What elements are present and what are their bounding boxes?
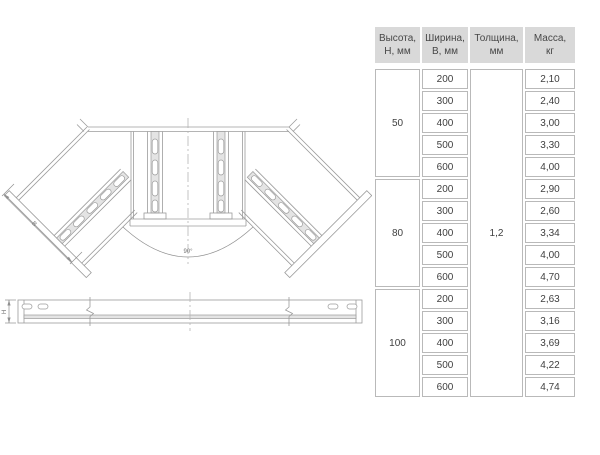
table-row: 50 200 1,2 2,10 <box>375 69 575 89</box>
break-line-right <box>286 297 293 326</box>
cable-tray-bend-drawing: В 90° Н <box>0 0 372 450</box>
mass-cell: 3,00 <box>525 113 575 133</box>
width-cell: 200 <box>422 69 468 89</box>
height-dim-label: Н <box>2 310 8 314</box>
perforated-rail-right <box>210 132 232 220</box>
mass-cell: 4,00 <box>525 157 575 177</box>
mass-cell: 2,60 <box>525 201 575 221</box>
width-cell: 500 <box>422 245 468 265</box>
width-cell: 400 <box>422 333 468 353</box>
mass-cell: 4,74 <box>525 377 575 397</box>
width-cell: 300 <box>422 311 468 331</box>
width-cell: 300 <box>422 91 468 111</box>
col-header-height: Высота,Н, мм <box>375 27 420 67</box>
mass-cell: 3,16 <box>525 311 575 331</box>
mass-cell: 2,10 <box>525 69 575 89</box>
side-view: Н <box>2 292 362 331</box>
top-view: В 90° <box>2 118 372 278</box>
width-cell: 400 <box>422 113 468 133</box>
width-dim-label: В <box>30 221 37 228</box>
width-cell: 500 <box>422 135 468 155</box>
mass-cell: 2,40 <box>525 91 575 111</box>
mass-cell: 4,70 <box>525 267 575 287</box>
col-header-width: Ширина,В, мм <box>422 27 468 67</box>
col-header-mass: Масса,кг <box>525 27 575 67</box>
mass-cell: 4,00 <box>525 245 575 265</box>
mass-cell: 3,34 <box>525 223 575 243</box>
width-dimension: В <box>2 184 82 264</box>
height-cell: 80 <box>375 179 420 287</box>
width-cell: 600 <box>422 267 468 287</box>
mass-cell: 2,63 <box>525 289 575 309</box>
dimensions-table-container: Высота,Н, мм Ширина,В, мм Толщина,мм Мас… <box>373 25 579 399</box>
width-cell: 200 <box>422 179 468 199</box>
width-cell: 200 <box>422 289 468 309</box>
perforated-rail-left <box>144 132 166 220</box>
technical-drawing: В 90° Н <box>0 0 372 450</box>
height-cell: 100 <box>375 289 420 397</box>
width-cell: 300 <box>422 201 468 221</box>
col-header-thickness: Толщина,мм <box>470 27 523 67</box>
mass-cell: 2,90 <box>525 179 575 199</box>
mass-cell: 3,30 <box>525 135 575 155</box>
width-cell: 400 <box>422 223 468 243</box>
bend-arm-right <box>214 120 372 278</box>
height-dimension: Н <box>2 300 16 323</box>
mass-cell: 3,69 <box>525 333 575 353</box>
height-cell: 50 <box>375 69 420 177</box>
width-cell: 500 <box>422 355 468 375</box>
width-cell: 600 <box>422 377 468 397</box>
thickness-cell: 1,2 <box>470 69 523 397</box>
mass-cell: 4,22 <box>525 355 575 375</box>
bend-arm-left <box>4 120 162 278</box>
break-line-left <box>87 297 94 326</box>
width-cell: 600 <box>422 157 468 177</box>
dimensions-table: Высота,Н, мм Ширина,В, мм Толщина,мм Мас… <box>373 25 577 399</box>
